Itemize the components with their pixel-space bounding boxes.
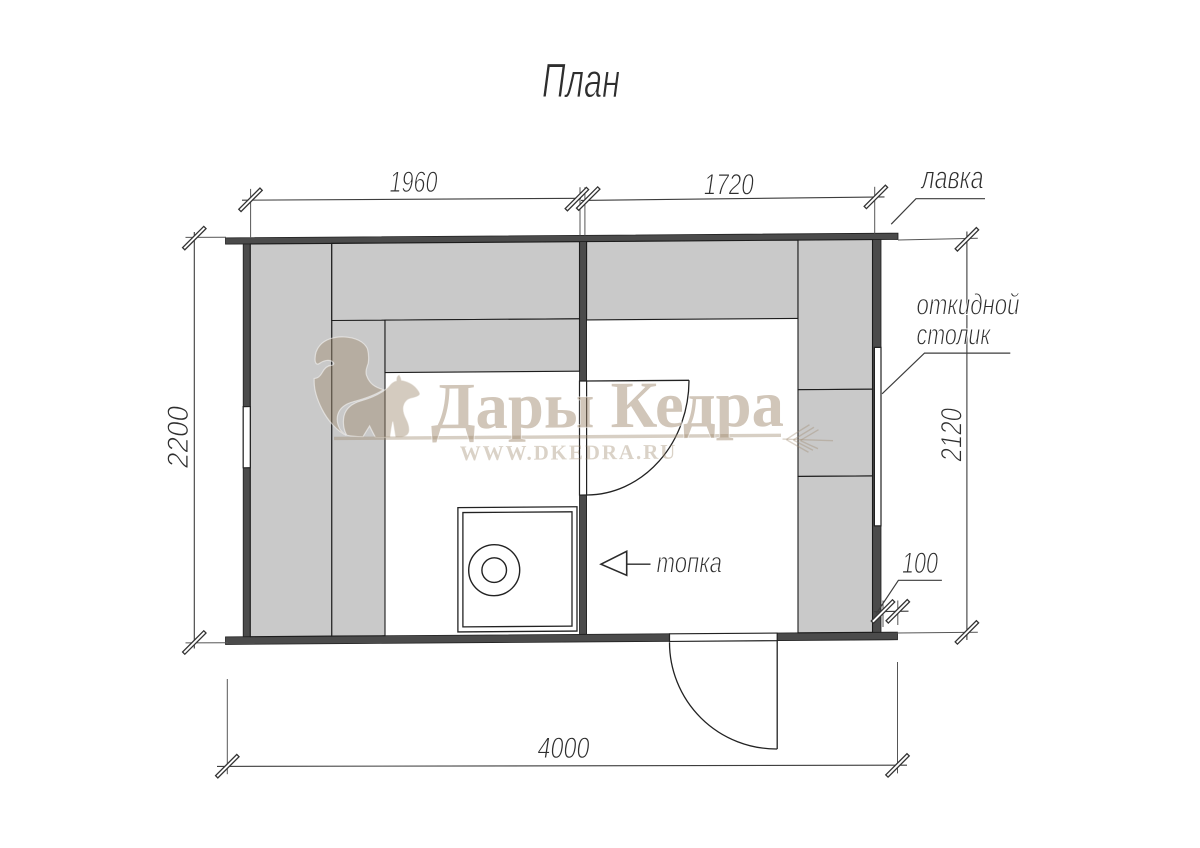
svg-text:План: План bbox=[542, 55, 620, 108]
svg-text:столик: столик bbox=[917, 319, 992, 352]
svg-text:Дары Кедра: Дары Кедра bbox=[431, 368, 784, 443]
svg-text:откидной: откидной bbox=[917, 289, 1020, 322]
svg-text:100: 100 bbox=[902, 547, 938, 580]
svg-text:2120: 2120 bbox=[936, 408, 969, 463]
svg-text:лавка: лавка bbox=[920, 160, 983, 196]
svg-text:топка: топка bbox=[657, 547, 723, 580]
svg-text:1720: 1720 bbox=[704, 169, 754, 202]
svg-text:4000: 4000 bbox=[538, 732, 590, 765]
svg-text:2200: 2200 bbox=[162, 406, 195, 469]
svg-text:1960: 1960 bbox=[390, 166, 438, 199]
